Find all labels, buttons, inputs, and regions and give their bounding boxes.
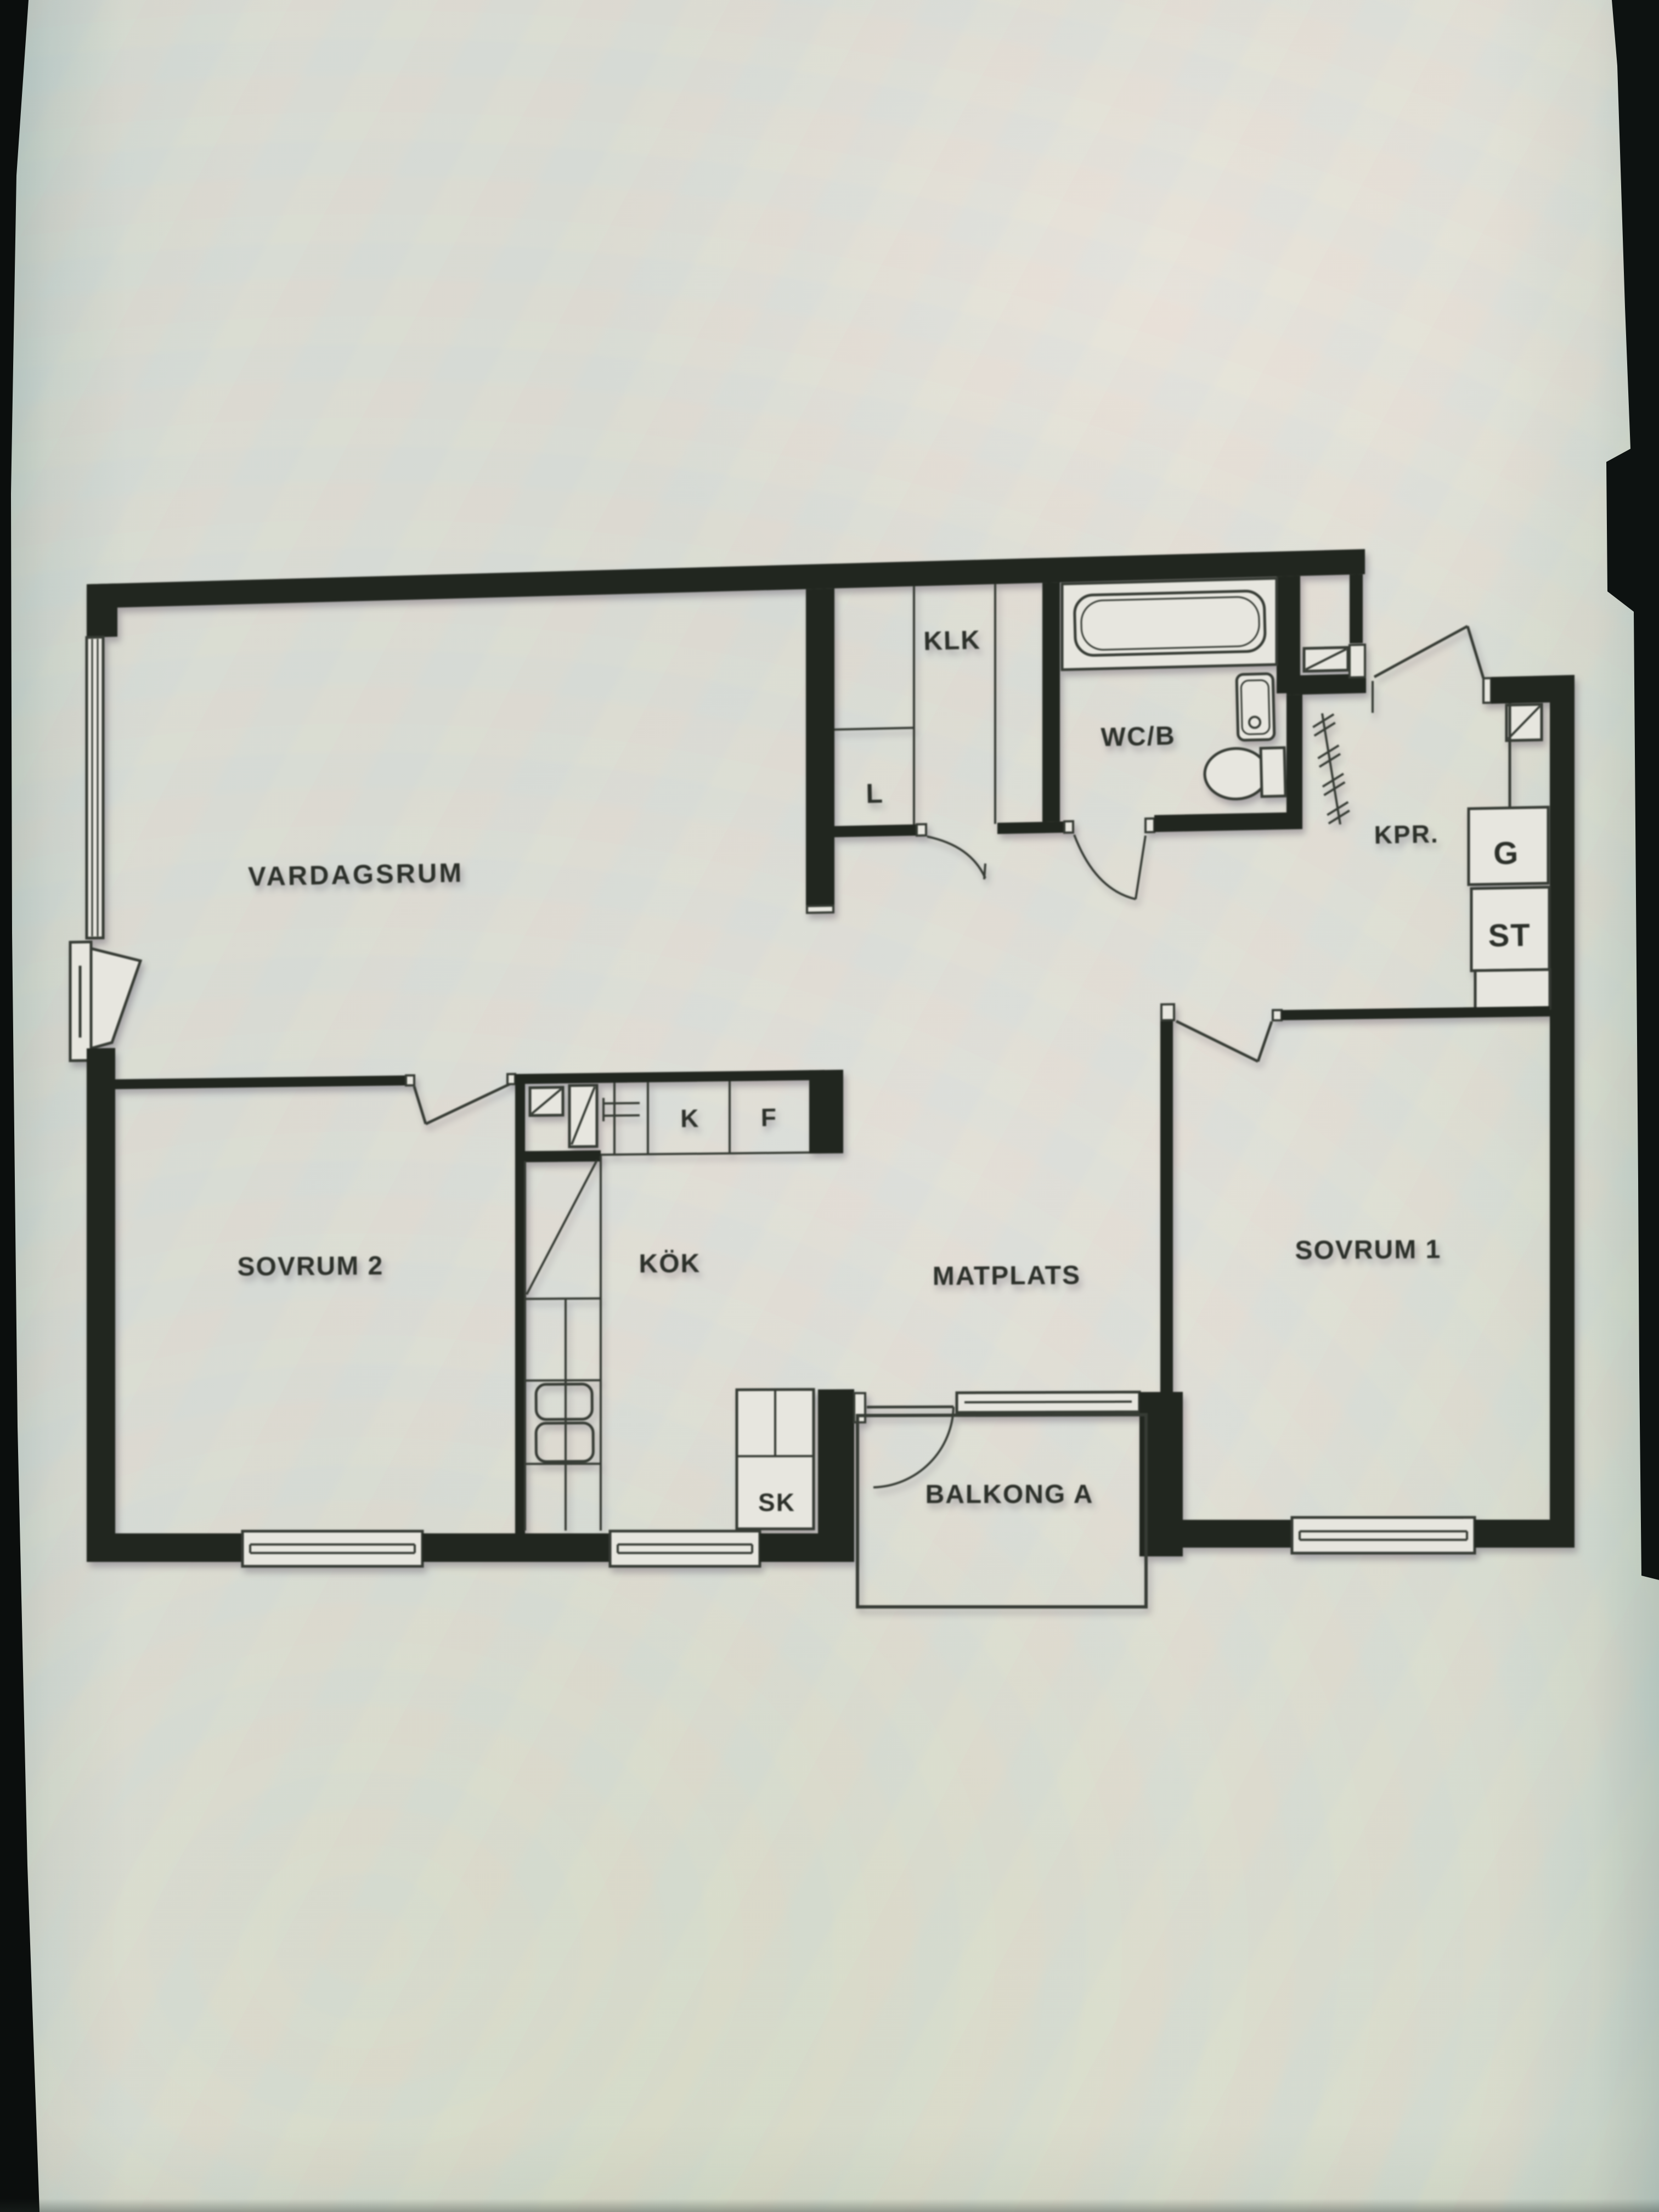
svg-text:SOVRUM 2: SOVRUM 2 [237, 1251, 383, 1282]
svg-text:K: K [680, 1104, 700, 1132]
svg-text:MATPLATS: MATPLATS [933, 1261, 1081, 1291]
svg-text:KÖK: KÖK [639, 1249, 701, 1279]
svg-text:G: G [1493, 835, 1519, 871]
svg-text:KLK: KLK [923, 625, 981, 656]
svg-text:KPR.: KPR. [1374, 819, 1439, 849]
svg-text:VARDAGSRUM: VARDAGSRUM [248, 858, 464, 891]
svg-text:L: L [866, 778, 884, 809]
svg-text:ST: ST [1488, 917, 1531, 953]
svg-text:SOVRUM 1: SOVRUM 1 [1295, 1235, 1441, 1265]
svg-text:BALKONG A: BALKONG A [926, 1480, 1094, 1509]
svg-text:WC/B: WC/B [1101, 721, 1176, 752]
svg-text:SK: SK [758, 1488, 795, 1516]
svg-text:F: F [760, 1103, 777, 1131]
